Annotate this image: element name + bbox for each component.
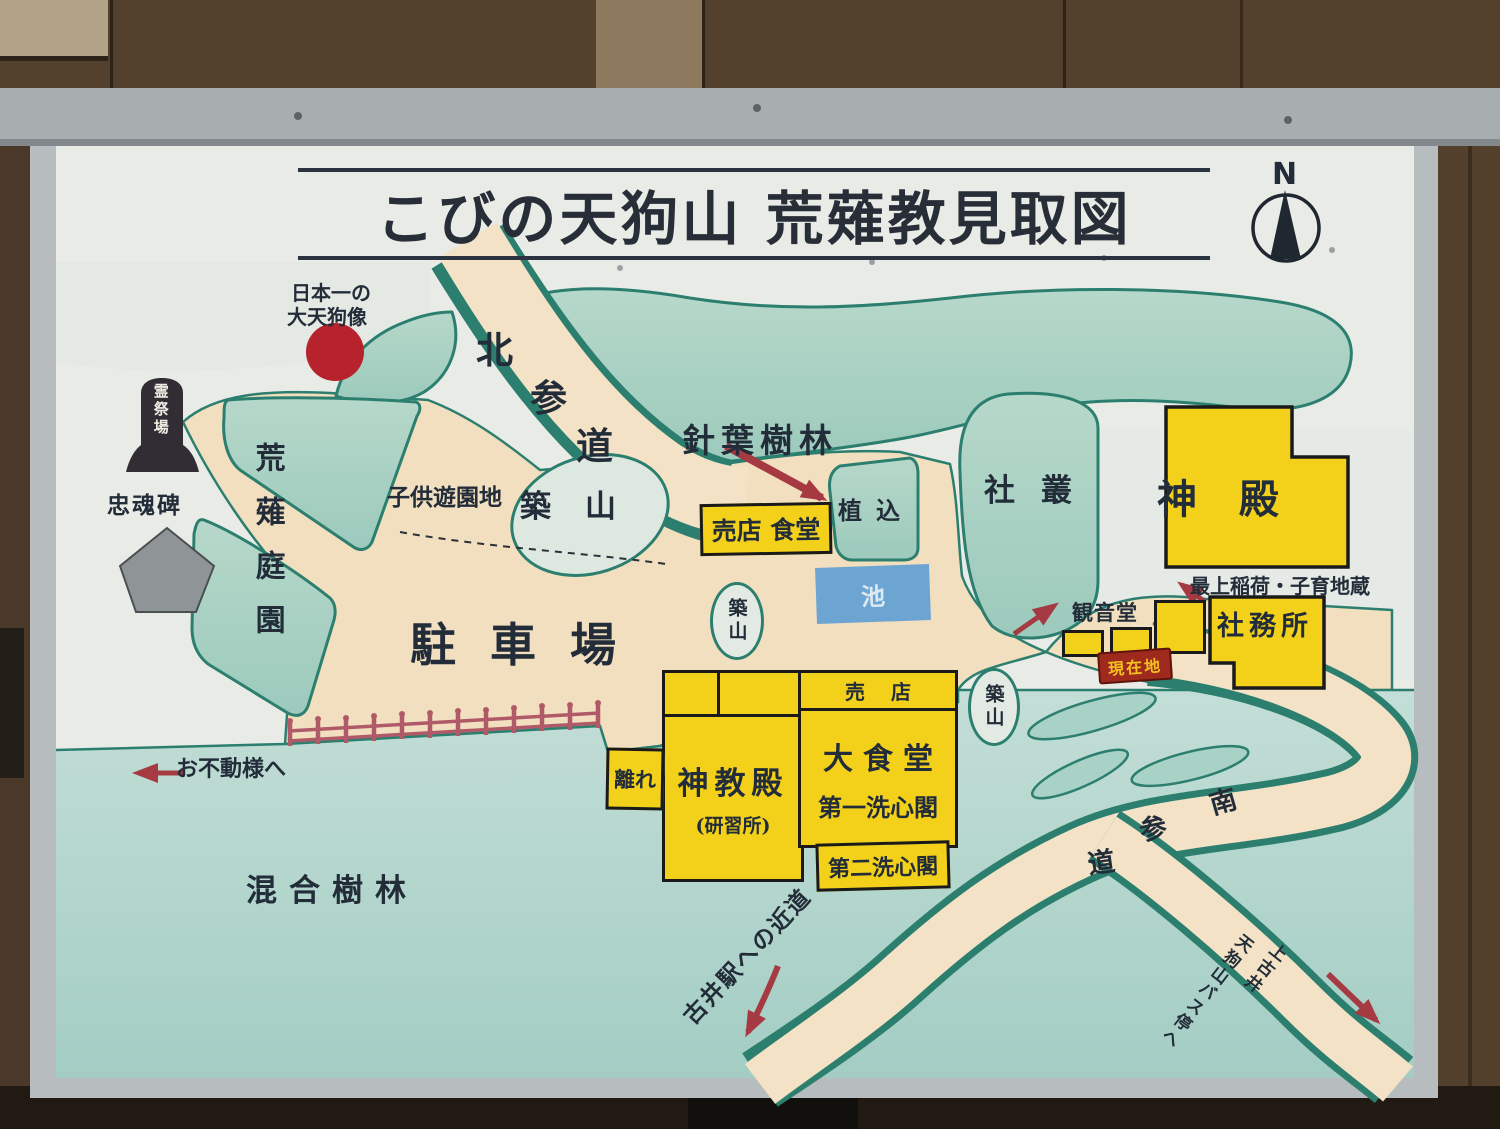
kyoden-label-block: 神教殿 (研習所) xyxy=(678,717,789,879)
conifer-forest-label: 針葉樹林 xyxy=(682,423,838,460)
kyoden-divider xyxy=(717,673,720,714)
detached-room-building: 離れ xyxy=(605,747,664,810)
shop-label: 売店 xyxy=(845,676,937,705)
pond-label: 池 xyxy=(860,576,885,612)
you-are-here-badge: 現在地 xyxy=(1097,647,1173,684)
loyalty-monument-label: 忠魂碑 xyxy=(107,493,182,519)
mogami-inari-label: 最上稲荷・子育地蔵 xyxy=(1190,575,1370,597)
mound-east-label: 築山 xyxy=(981,684,1008,730)
north-approach-label-char-2: 道 xyxy=(576,426,613,467)
second-senshinkaku-building: 第二洗心閣 xyxy=(815,840,950,891)
ofudosama-label: お不動様へ xyxy=(176,757,286,782)
garden-label: 荒薙庭園 xyxy=(250,442,284,658)
spirit-festival-ground-label: 霊祭場 xyxy=(152,383,169,437)
kyoden-label: 神教殿 xyxy=(678,758,789,803)
tengu-statue-dot xyxy=(306,323,364,381)
large-dining-label: 大食堂 xyxy=(823,734,943,778)
map-title: こびの天狗山 荒薙教見取図 xyxy=(298,168,1210,260)
mound-nw-label: 築山 xyxy=(520,490,650,525)
kyoden-roof-strip xyxy=(665,673,801,717)
detached-room-label: 離れ xyxy=(614,764,657,795)
tengu-statue-label-line2: 大天狗像 xyxy=(287,306,367,328)
north-approach-label-char-1: 参 xyxy=(530,378,567,419)
shop-strip: 売店 xyxy=(801,673,955,711)
second-senshinkaku-label: 第二洗心閣 xyxy=(828,849,939,884)
mixed-forest-label: 混合樹林 xyxy=(246,874,418,909)
shrine-map-signboard-photo: こびの天狗山 荒薙教見取図 N 日本一の 大天狗像 霊祭場 忠魂碑 最上稲荷・子… xyxy=(0,0,1500,1129)
shrine-grove-label: 社叢 xyxy=(984,474,1098,509)
first-senshinkaku-label: 第一洗心閣 xyxy=(818,788,938,823)
parking-label: 駐車場 xyxy=(410,620,650,672)
large-dining-building: 売店 大食堂 第一洗心閣 xyxy=(798,670,958,848)
tengu-statue-label-line1: 日本一の xyxy=(291,282,371,304)
mound-center: 築山 xyxy=(710,582,764,660)
planting-label: 植込 xyxy=(838,498,914,525)
kyoden-building: 神教殿 (研習所) xyxy=(662,670,804,882)
kannon-hall-label: 観音堂 xyxy=(1072,601,1138,625)
north-approach-label-char-0: 北 xyxy=(476,330,513,371)
pond: 池 xyxy=(815,564,931,624)
you-are-here-label: 現在地 xyxy=(1107,652,1163,680)
compass-north-label: N xyxy=(1272,158,1297,192)
small-shrine-square-3 xyxy=(1154,600,1206,654)
shop-dining-label: 売店 食堂 xyxy=(711,510,820,548)
mound-center-label: 築山 xyxy=(724,598,751,644)
kyoden-sub-label: (研習所) xyxy=(696,811,771,838)
main-shrine-label: 神殿 xyxy=(1157,478,1313,523)
shop-dining-building: 売店 食堂 xyxy=(700,502,833,556)
south-approach-label-char-2: 道 xyxy=(1086,847,1117,881)
shrine-office-label: 社務所 xyxy=(1211,612,1319,642)
large-dining-label-block: 大食堂 第一洗心閣 xyxy=(818,711,938,845)
children-playground-label: 子供遊園地 xyxy=(387,485,502,511)
mound-east: 築山 xyxy=(968,668,1020,746)
